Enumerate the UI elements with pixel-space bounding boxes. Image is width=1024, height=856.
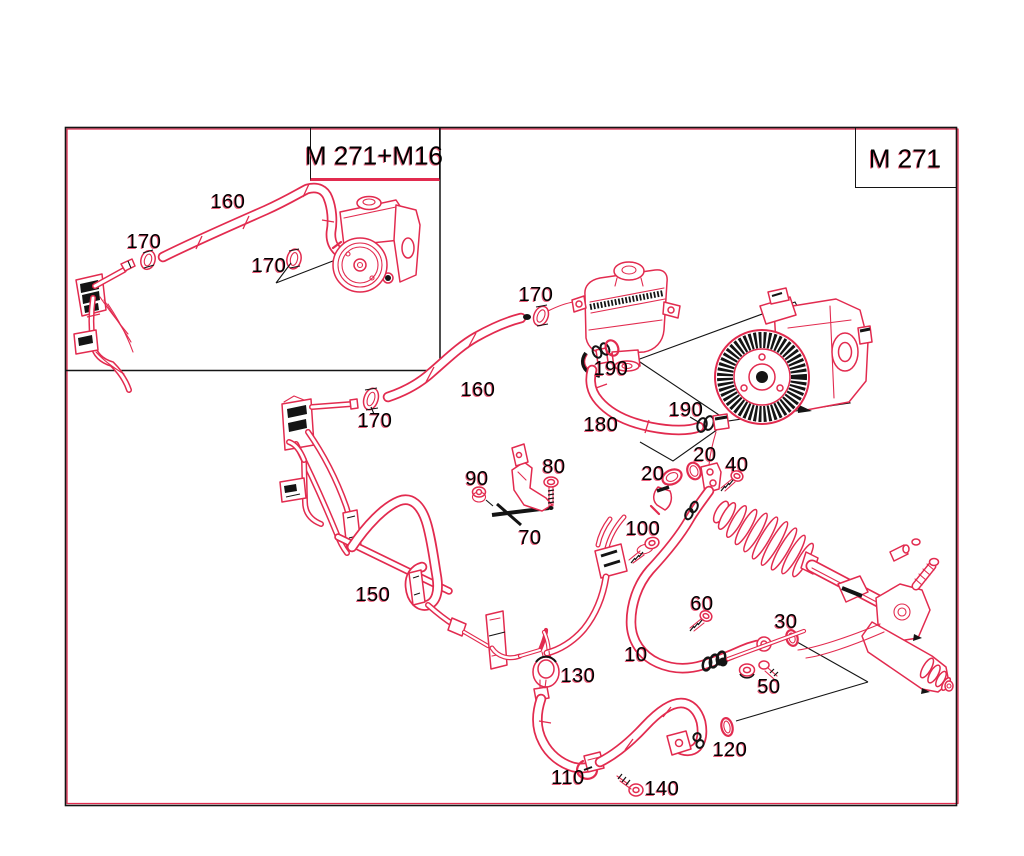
part-label-180-main: 180 [584, 414, 619, 437]
part-label-110-main: 110 [551, 767, 584, 790]
part-label-100-main: 100 [626, 518, 661, 541]
power-steering-pump [709, 288, 872, 465]
part-label-170-inset: 170 [127, 231, 162, 254]
inset-diagram [74, 184, 420, 390]
hose-clip-and-return [547, 517, 627, 653]
part-label-170-main: 170 [519, 284, 554, 307]
cooler-pipe-assembly [280, 396, 549, 669]
part-label-90-main: 90 [465, 468, 488, 491]
part-label-60-main: 60 [690, 593, 713, 616]
part-label-130-main: 130 [561, 665, 596, 688]
part-label-80-main: 80 [542, 456, 565, 479]
part-label-120-main: 120 [713, 739, 748, 762]
inset-line-bracket [74, 274, 133, 390]
variant-label-inset: M 271+M16 [305, 141, 443, 172]
part-label-190-main: 190 [669, 399, 704, 422]
part-label-70-main: 70 [518, 527, 541, 550]
variant-label-main: M 271 [869, 144, 941, 175]
part-label-40-main: 40 [725, 454, 748, 477]
diagram-frame [66, 128, 959, 806]
part-label-170-inset: 170 [252, 255, 287, 278]
part-label-50-main: 50 [757, 676, 780, 699]
hose-110 [534, 680, 705, 779]
parts-diagram-page: 1601701701701601701901801902040209080701… [0, 0, 1024, 856]
main-diagram [280, 262, 953, 796]
inset-hose-160 [163, 184, 348, 259]
bolt-140 [617, 774, 643, 796]
part-label-140-main: 140 [645, 778, 680, 801]
part-label-170-main: 170 [358, 410, 393, 433]
oring-120 [720, 717, 735, 737]
rack-pointers [736, 642, 868, 721]
part-label-160-main: 160 [461, 379, 496, 402]
part-label-190-main: 190 [594, 358, 629, 381]
inset-pump [333, 197, 420, 293]
part-label-20-main: 20 [693, 444, 716, 467]
fluid-reservoir [572, 262, 680, 371]
part-label-150-main: 150 [356, 584, 391, 607]
part-label-10-main: 10 [624, 644, 647, 667]
part-label-160-inset: 160 [211, 191, 246, 214]
part-label-20-main: 20 [641, 463, 664, 486]
part-label-30-main: 30 [774, 611, 797, 634]
